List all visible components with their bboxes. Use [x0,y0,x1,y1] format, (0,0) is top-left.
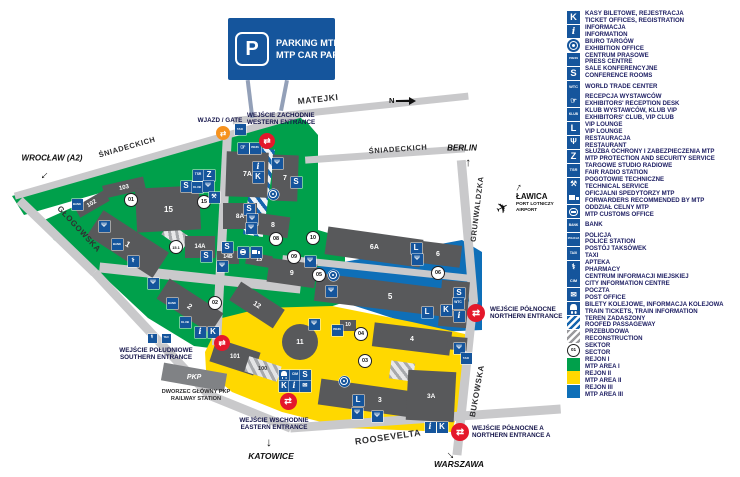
legend-item-text: POSTÓJ TAKSÓWEKTAXI [585,246,647,260]
sector-circle-03: 03 [358,354,372,368]
sector-circle-08: 08 [269,232,283,246]
legend-security-service-icon: Z [567,150,580,163]
airport-name: ŁAWICA [516,193,554,201]
legend-item-text: BIURO TARGÓWEXHIBITION OFFICE [585,39,644,53]
legend-item: KLUBKLUB WYSTAWCÓW, KLUB VIPEXHIBITORS' … [567,108,737,122]
gate-marker: ⇄ [216,126,230,140]
legend-item: REJON IMTP AREA I [567,357,737,371]
map-pharmacy-icon: ⚕ [148,334,157,343]
legend-item-text: REJON IIIMTP AREA III [585,385,623,399]
map-security-service-icon: Z [204,170,215,181]
entrance-label: WEJŚCIE WSCHODNIEEASTERN ENTRANCE [239,417,308,431]
map-vip-club-icon: KLUB [180,317,191,328]
building-label: 1 [124,239,133,249]
map-restaurant-icon: Ψ [272,158,283,169]
building-label: 6 [436,251,440,258]
entrance-marker-western: ⇄ [259,133,275,149]
building-label: 2 [186,301,194,311]
legend-item-text: KLUB WYSTAWCÓW, KLUB VIPEXHIBITORS' CLUB… [585,108,677,122]
legend-item: ⚕APTEKAPHARMACY [567,260,737,274]
legend-information-icon: i [567,25,580,38]
legend-item-text: WORLD TRADE CENTER [585,84,657,91]
legend-text-en: MTP AREA III [585,392,623,399]
map-press-centre-icon: PRESS [332,325,343,336]
legend-technical-service-icon: ⚒ [567,178,580,191]
building-label: 5 [388,291,392,300]
legend-train-tickets-icon [567,302,580,315]
map-technical-service-icon: ⚒ [209,192,220,203]
legend-item: ☞RECEPCJA WYSTAWCÓWEXHIBITORS' RECEPTION… [567,94,737,108]
destination-label: KATOWICE [248,451,294,461]
legend-ticket-office-icon: K [567,11,580,24]
legend-item: PRESSCENTRUM PRASOWEPRESS CENTRE [567,53,737,67]
sector-circle-10: 10 [306,231,320,245]
legend-item-text: TEREN ZADASZONYROOFED PASSAGEWAY [585,316,655,330]
map-bank-icon: BANK [72,199,83,210]
legend-item: 01SEKTORSECTOR [567,343,737,357]
map-conference-rooms-icon: S [300,370,311,381]
legend-conference-rooms-icon: S [567,67,580,80]
map-exhibition-office-icon [268,189,279,200]
entrance-label-en: WESTERN ENTRANCE [247,119,315,126]
legend-vip-club-icon: KLUB [567,108,580,121]
legend-item: REJON IIIMTP AREA III [567,385,737,399]
parking-line-2: MTP CAR PARK [276,49,346,61]
railway-station-label: DWORZEC GŁÓWNY PKPRAILWAY STATION [162,389,231,402]
legend-item: KKASY BILETOWE, REJESTRACJATICKET OFFICE… [567,11,737,25]
entrance-label: WEJŚCIE ZACHODNIEWESTERN ENTRANCE [247,112,315,126]
map-world-trade-center-icon: WTC [453,298,464,309]
legend-police-icon: POLICJA [567,233,580,246]
legend-item: iINFORMACJAINFORMATION [567,25,737,39]
map-restaurant-icon: Ψ [217,261,228,272]
sector-circle-05: 05 [312,268,326,282]
parking-icon: P [235,32,269,66]
destination-label: WROCŁAW (A2) [22,154,83,163]
legend-sector-icon: 01 [567,344,580,357]
legend-item-text: RECEPCJA WYSTAWCÓWEXHIBITORS' RECEPTION … [585,94,679,108]
north-label: N [389,96,394,105]
mtp-fairgrounds-map: 10310211514A14B138A897A76A65433A11101221… [0,0,740,477]
legend-restaurant-icon: Ψ [567,136,580,149]
street-label-matejki: MATEJKI [297,92,339,106]
legend-sw-yellow-icon [567,371,580,384]
legend-world-trade-center-icon: WTC [567,81,580,94]
map-reception-desk-icon: ☞ [238,143,249,154]
entrance-marker-southern: ⇄ [214,335,230,351]
legend-sw-blue-icon [567,385,580,398]
legend-item: ⚒POGOTOWIE TECHNICZNETECHNICAL SERVICE [567,177,737,191]
map-information-icon: i [195,327,206,338]
building-label: 15 [164,205,173,214]
entrance-label: WEJŚCIE POŁUDNIOWESOUTHERN ENTRANCE [119,347,192,361]
entrance-label-pl: WEJŚCIE WSCHODNIE [239,417,308,424]
legend-item: CIMCENTRUM INFORMACJI MIEJSKIEJCITY INFO… [567,274,737,288]
entrance-marker-eastern: ⇄ [280,393,297,410]
legend-item-text: OFICJALNI SPEDYTORZY MTPFORWARDERS RECOM… [585,191,704,205]
legend-item: BILETY KOLEJOWE, INFORMACJA KOLEJOWATRAI… [567,302,737,316]
legend-text-pl: WORLD TRADE CENTER [585,84,657,91]
building-label: 101 [230,354,240,360]
legend-exhibition-office-icon [567,39,580,52]
legend-item-text: SEKTORSECTOR [585,343,610,357]
parking-line-1: PARKING MTP [276,37,346,49]
map-pharmacy-icon: ⚕ [128,256,139,267]
station-label-pl: DWORZEC GŁÓWNY PKP [162,389,231,396]
map-restaurant-icon: Ψ [246,223,257,234]
map-conference-rooms-icon: S [222,242,233,253]
legend-item-text: REJON IMTP AREA I [585,357,620,371]
map-restaurant-icon: Ψ [412,254,423,265]
entrance-marker-northern-a: ⇄ [451,423,469,441]
map-bank-icon: BANK [112,239,123,250]
legend-item-text: KASY BILETOWE, REJESTRACJATICKET OFFICES… [585,11,684,25]
legend-item-text: RESTAURACJARESTAURANT [585,136,631,150]
legend-item: TEREN ZADASZONYROOFED PASSAGEWAY [567,316,737,330]
north-arrow-icon [396,100,409,102]
legend-item: ✉POCZTAPOST OFFICE [567,288,737,302]
map-train-tickets-icon [279,370,290,381]
legend-item-text: BANK [585,222,603,229]
street-label-grunwaldzka: GRUNWALDZKA [469,176,486,243]
entrance-label-pl: WEJŚCIE POŁUDNIOWE [119,347,192,354]
building-label: 13 [256,257,262,263]
legend-customs-office-icon [567,205,580,218]
map-vip-lounge-icon: L [353,395,364,406]
legend-item-text: VIP LOUNGEVIP LOUNGE [585,122,622,136]
entrance-label-pl: WEJŚCIE ZACHODNIE [247,112,315,119]
legend-pharmacy-icon: ⚕ [567,261,580,274]
map-conference-rooms-icon: S [201,251,212,262]
map-exhibition-office-icon [328,270,339,281]
building-label: 11 [296,339,303,346]
building-label: 6A [370,243,379,250]
entrance-label-pl: WEJŚCIE PÓŁNOCNE [490,306,562,313]
map-vip-lounge-icon: L [411,243,422,254]
destination-label: WARSZAWA [434,459,484,469]
destination-label: BERLIN [447,144,477,153]
building-3A: 3A [406,370,457,422]
airport-sub-pl: PORT LOTNICZY [516,201,554,207]
parking-sign-text: PARKING MTP MTP CAR PARK [276,37,346,61]
map-restaurant-icon: Ψ [305,256,316,267]
map-restaurant-icon: Ψ [99,221,110,232]
north-indicator: N [389,96,416,105]
sector-circle-15.1: 15.1 [169,240,183,254]
map-restaurant-icon: Ψ [372,411,383,422]
legend-item-text: SŁUŻBA OCHRONY I ZABEZPIECZENIA MTPMTP P… [585,149,715,163]
map-restaurant-icon: Ψ [309,319,320,330]
legend-item-text: INFORMACJAINFORMATION [585,25,628,39]
legend-text-en: MTP CUSTOMS OFFICE [585,212,654,219]
building-label: 102 [86,199,98,209]
north-arrow-head-icon [409,97,416,105]
legend-item-text: BILETY KOLEJOWE, INFORMACJA KOLEJOWATRAI… [585,302,723,316]
legend-vip-lounge-icon: L [567,122,580,135]
map-customs-office-icon [238,247,249,258]
map-restaurant-icon: Ψ [352,408,363,419]
map-bank-icon: BANK [167,298,178,309]
legend-item-text: REJON IIMTP AREA II [585,371,621,385]
map-information-icon: i [425,422,436,433]
legend-item-text: POGOTOWIE TECHNICZNETECHNICAL SERVICE [585,177,664,191]
legend-item: PRZEBUDOWARECONSTRUCTION [567,329,737,343]
building-label: 14A [194,244,205,250]
entrance-label-en: EASTERN ENTRANCE [239,424,308,431]
legend-item: REJON IIMTP AREA II [567,371,737,385]
map-taxi-icon: TAXI [461,353,472,364]
legend-item: LVIP LOUNGEVIP LOUNGE [567,122,737,136]
map-information-icon: i [289,381,300,392]
legend-fair-radio-icon: TSR [567,164,580,177]
legend-hatch-gray-icon [567,330,580,343]
entrance-label-en: SOUTHERN ENTRANCE [119,354,192,361]
legend-item: WTCWORLD TRADE CENTER [567,80,737,94]
building-label: 100 [258,366,267,372]
map-ticket-office-icon: K [441,305,452,316]
entrance-label-en: NORTHERN ENTRANCE A [472,432,550,439]
building-label: 3 [378,397,382,404]
legend-post-office-icon: ✉ [567,288,580,301]
airport-sub-en: AIRPORT [516,207,554,213]
legend-item-text: SALE KONFERENCYJNECONFERENCE ROOMS [585,66,657,80]
entrance-label-pl: WJAZD / GATE [198,117,243,124]
entrance-label: WJAZD / GATE [198,117,243,124]
map-taxi-icon: TAXI [162,334,171,343]
entrance-label-en: NORTHERN ENTRANCE [490,313,562,320]
parking-mtp-sign: P PARKING MTP MTP CAR PARK [228,18,335,80]
direction-arrow-icon: → [264,437,278,449]
map-exhibition-office-icon [339,376,350,387]
map-forwarders-icon [251,247,262,258]
legend-text-en: CONFERENCE ROOMS [585,73,657,80]
legend-reception-desk-icon: ☞ [567,94,580,107]
entrance-label: WEJŚCIE PÓŁNOCNE ANORTHERN ENTRANCE A [472,425,550,439]
map-conference-rooms-icon: S [181,181,192,192]
building-label: PKP [187,374,201,381]
legend-text-pl: BANK [585,222,603,229]
map-restaurant-icon: Ψ [203,181,214,192]
map-ticket-office-icon: K [437,422,448,433]
building-label: 10 [345,322,351,328]
legend-item-text: PRZEBUDOWARECONSTRUCTION [585,329,643,343]
map-information-icon: i [454,311,465,322]
map-restaurant-icon: Ψ [148,278,159,289]
sector-circle-02: 02 [208,296,222,310]
legend-item: SSALE KONFERENCYJNECONFERENCE ROOMS [567,66,737,80]
map-taxi-icon: TAXI [235,124,246,135]
sector-circle-06: 06 [431,266,445,280]
legend-city-information-icon: CIM [567,274,580,287]
building-label: 12 [252,300,262,310]
building-label: 3A [427,393,435,400]
legend-item: OFICJALNI SPEDYTORZY MTPFORWARDERS RECOM… [567,191,737,205]
map-vip-club-icon: KLUB [192,182,203,193]
map-conference-rooms-icon: S [291,177,302,188]
map-fair-radio-icon: TSR [193,170,204,181]
legend-item: ODDZIAŁ CELNY MTPMTP CUSTOMS OFFICE [567,205,737,219]
legend-forwarders-icon [567,191,580,204]
legend-sw-green-icon [567,358,580,371]
direction-arrow-icon: → [459,157,473,169]
street-label-roosevelta: ROOSEVELTA [354,427,421,446]
building-label: 7A [243,170,252,177]
map-ticket-office-icon: K [253,172,264,183]
legend-item-text: ODDZIAŁ CELNY MTPMTP CUSTOMS OFFICE [585,205,654,219]
legend-item-text: CENTRUM PRASOWEPRESS CENTRE [585,53,649,67]
legend-item: BIURO TARGÓWEXHIBITION OFFICE [567,39,737,53]
legend-bank-icon: BANK [567,219,580,232]
entrance-label-pl: WEJŚCIE PÓŁNOCNE A [472,425,550,432]
map-restaurant-icon: Ψ [326,286,337,297]
building-label: 7 [283,175,287,182]
legend-item: ΨRESTAURACJARESTAURANT [567,136,737,150]
legend-item: TSRTARGOWE STUDIO RADIOWEFAIR RADIO STAT… [567,163,737,177]
legend-item-text: TARGOWE STUDIO RADIOWEFAIR RADIO STATION [585,163,672,177]
entrance-label: WEJŚCIE PÓŁNOCNENORTHERN ENTRANCE [490,306,562,320]
map-post-office-icon: ✉ [300,381,311,392]
entrance-marker-northern: ⇄ [467,304,485,322]
building-label: 14B [223,254,233,260]
legend-press-centre-icon: PRESS [567,53,580,66]
legend-item: ZSŁUŻBA OCHRONY I ZABEZPIECZENIA MTPMTP … [567,149,737,163]
building-label: 8 [271,222,275,229]
parking-sign-leg [279,79,289,110]
building-label: 4 [410,336,414,343]
legend-item: TAXIPOSTÓJ TAKSÓWEKTAXI [567,246,737,260]
legend-item: BANKBANK [567,219,737,233]
legend-item-text: APTEKAPHARMACY [585,260,620,274]
building-label: 103 [118,183,129,191]
legend-item-text: POCZTAPOST OFFICE [585,288,626,302]
sector-circle-01: 01 [124,193,138,207]
airport-label: → ✈ ŁAWICA PORT LOTNICZY AIRPORT [516,193,554,212]
building-label: 9 [290,270,294,277]
legend: KKASY BILETOWE, REJESTRACJATICKET OFFICE… [567,11,737,399]
map-vip-lounge-icon: L [422,307,433,318]
legend-taxi-icon: TAXI [567,247,580,260]
sector-circle-04: 04 [354,327,368,341]
legend-hatch-blue-icon [567,316,580,329]
station-label-en: RAILWAY STATION [162,396,231,403]
legend-item-text: CENTRUM INFORMACJI MIEJSKIEJCITY INFORMA… [585,274,689,288]
sector-circle-09: 09 [287,250,301,264]
